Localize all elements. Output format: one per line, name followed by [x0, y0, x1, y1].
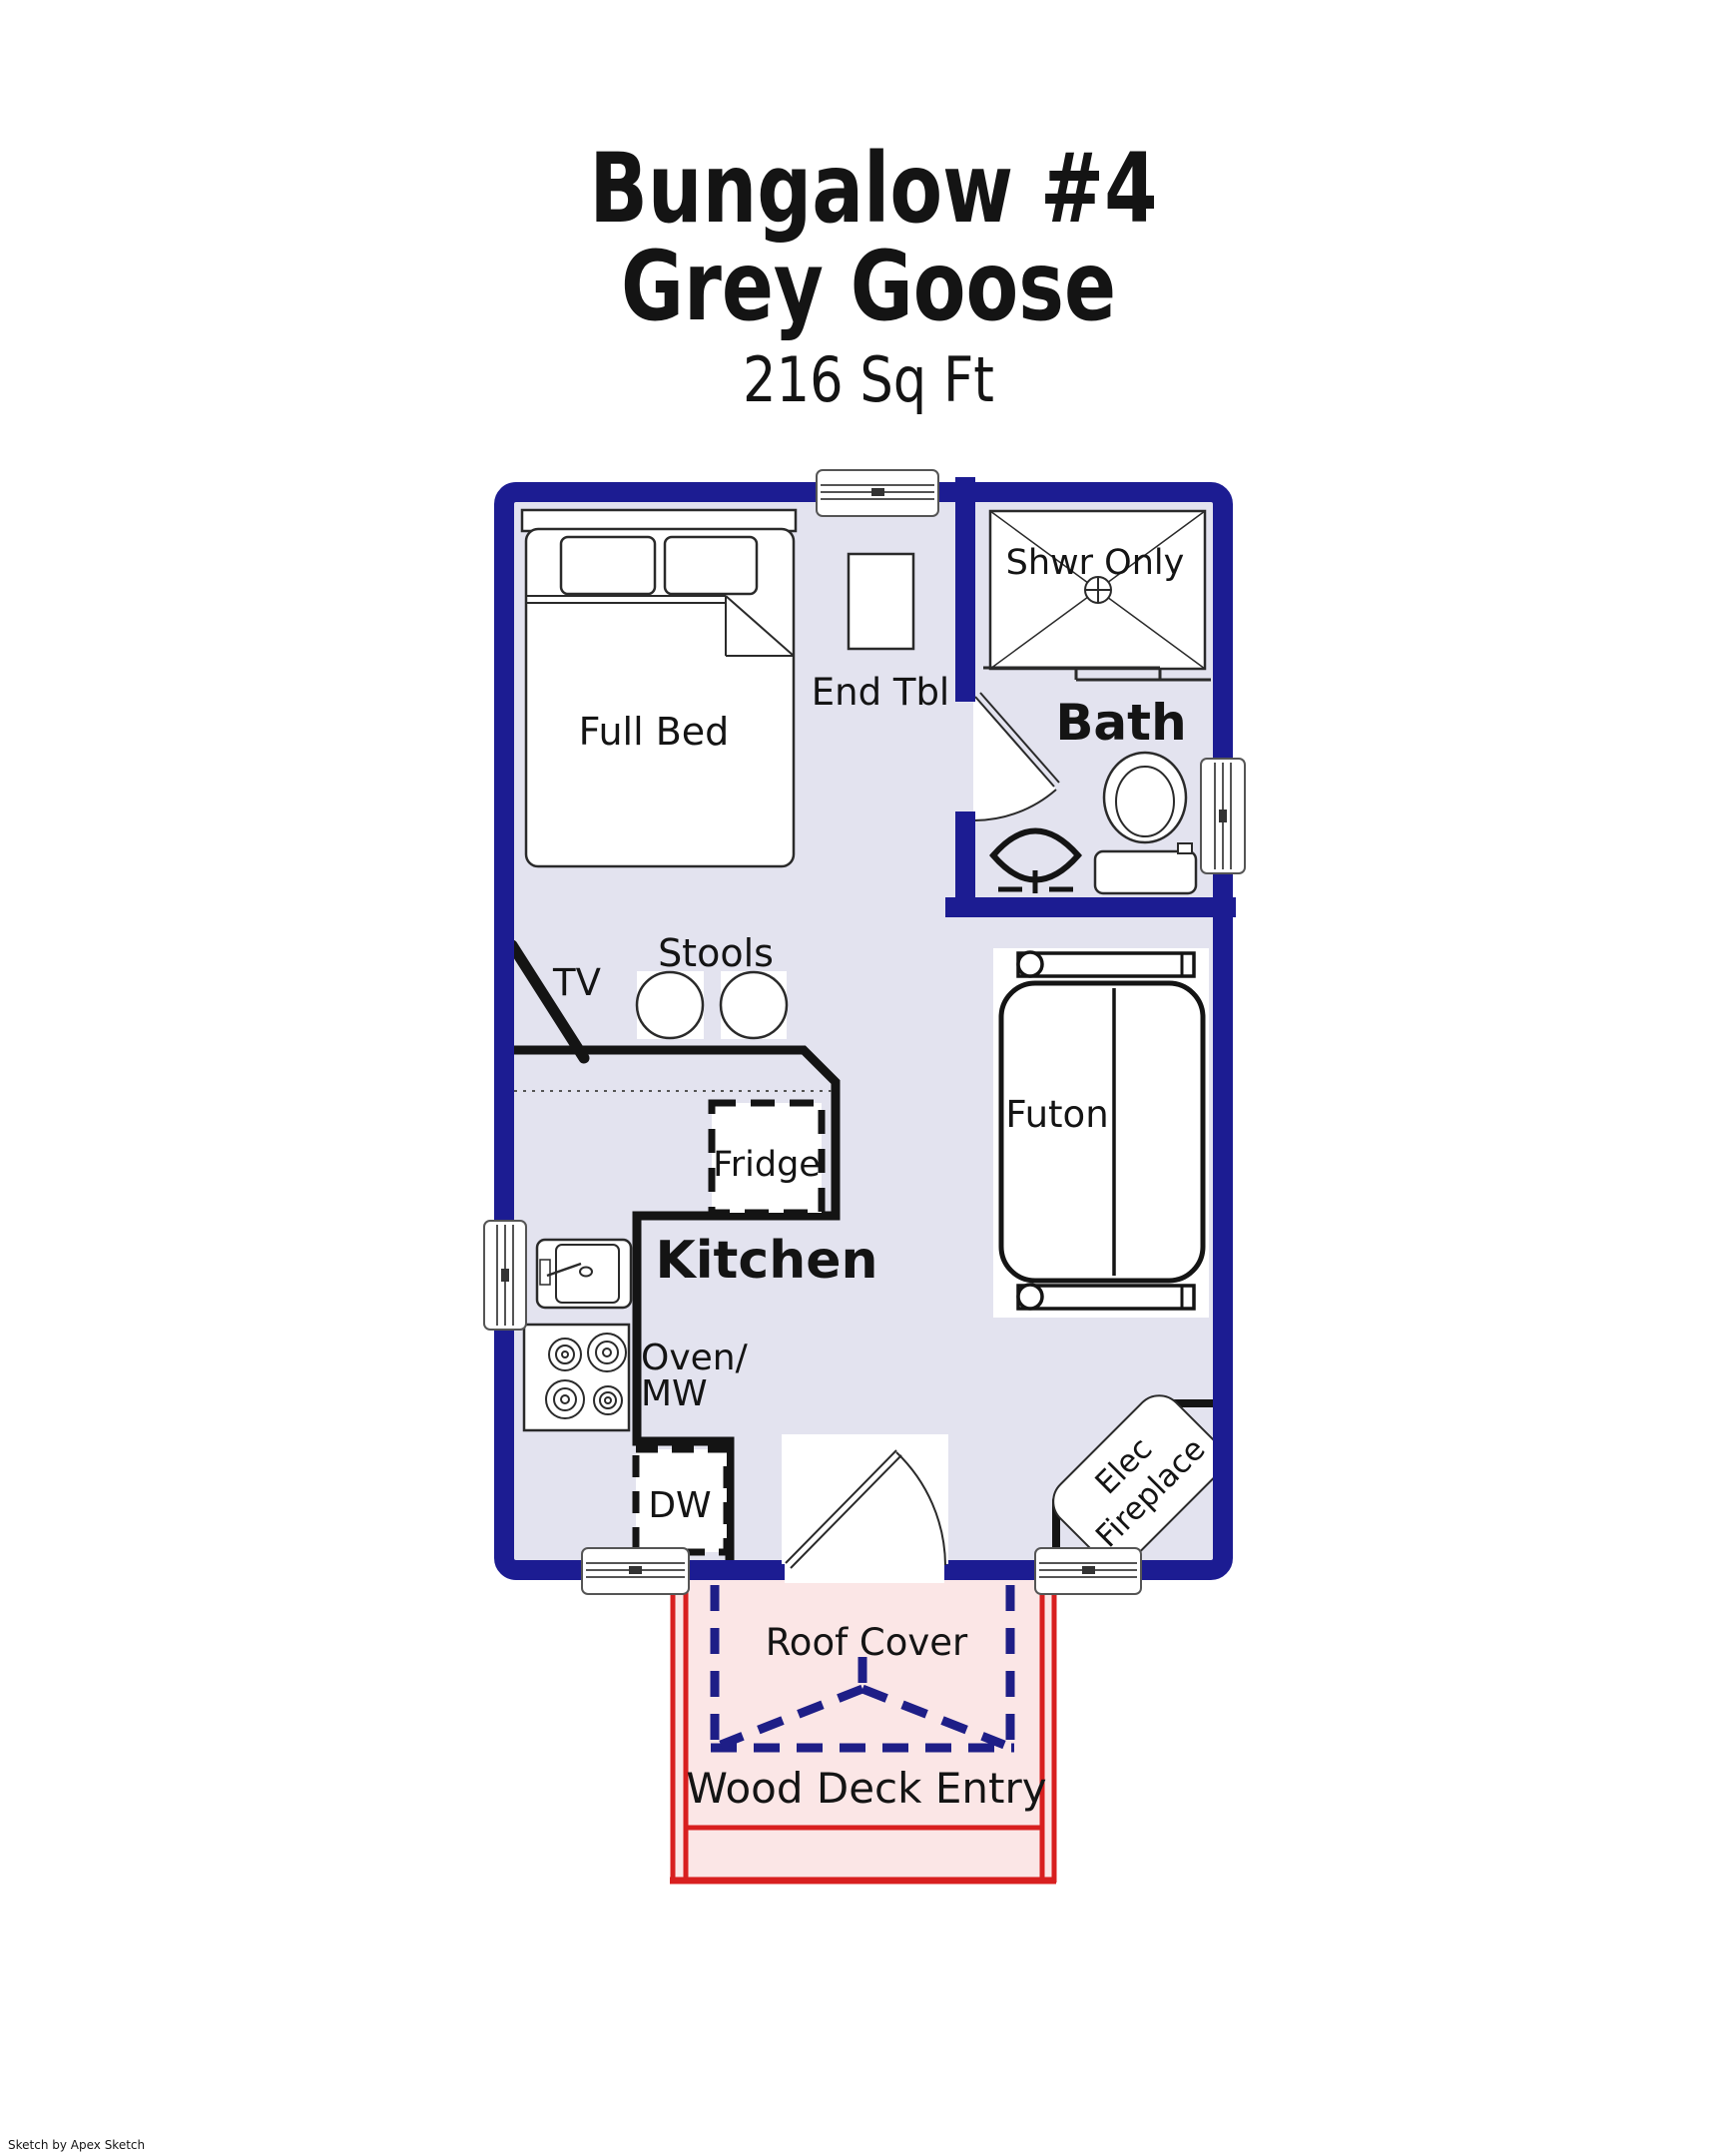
entry-door — [782, 1434, 948, 1583]
roof-cover-label: Roof Cover — [766, 1621, 968, 1664]
dishwasher-label: DW — [648, 1485, 711, 1526]
floor-plan-svg: Bungalow #4 Grey Goose 216 Sq Ft Roof Co… — [0, 0, 1713, 2156]
window-right-bath — [1201, 759, 1245, 873]
burner — [588, 1334, 626, 1371]
futon-armrest-knob — [1018, 1285, 1042, 1309]
wood-deck-label: Wood Deck Entry — [686, 1764, 1046, 1813]
fridge-label: Fridge — [713, 1145, 821, 1185]
full-bed-label: Full Bed — [579, 710, 730, 754]
end-table — [849, 554, 913, 649]
toilet-tank — [1095, 851, 1196, 893]
page-title: Bungalow #4 — [589, 133, 1157, 246]
kitchen-label: Kitchen — [655, 1231, 877, 1291]
window-bottom-right — [1035, 1548, 1141, 1594]
oven-label-2: MW — [641, 1373, 708, 1414]
faucet — [540, 1260, 550, 1285]
oven-label-1: Oven/ — [641, 1338, 749, 1378]
window-left-kitchen — [484, 1221, 526, 1330]
toilet-button — [1178, 843, 1192, 853]
drain — [580, 1268, 592, 1277]
shower-label: Shwr Only — [1006, 543, 1185, 583]
wood-deck: Roof Cover Wood Deck Entry — [670, 1580, 1056, 1883]
end-table-label: End Tbl — [812, 671, 949, 714]
page-subtitle: Grey Goose — [621, 231, 1116, 343]
futon-armrest-bottom — [1018, 1286, 1194, 1309]
stove — [524, 1325, 629, 1430]
burner — [546, 1380, 584, 1418]
bath-label: Bath — [1055, 694, 1186, 752]
window-top — [817, 470, 938, 516]
stools-label: Stools — [658, 931, 774, 975]
burner — [594, 1386, 622, 1414]
pillow — [665, 537, 757, 594]
stool — [721, 972, 787, 1038]
area-label: 216 Sq Ft — [743, 344, 994, 416]
pillow — [561, 537, 655, 594]
credit-text: Sketch by Apex Sketch — [8, 2138, 145, 2152]
stool — [637, 972, 703, 1038]
burner — [549, 1339, 581, 1370]
window-bottom-left — [582, 1548, 689, 1594]
tv-label: TV — [552, 961, 601, 1004]
kitchen-sink — [537, 1240, 631, 1308]
futon-armrest-top — [1018, 953, 1194, 976]
futon-label: Futon — [1005, 1093, 1108, 1136]
futon-armrest-knob — [1018, 952, 1042, 976]
floor-plan-page: Bungalow #4 Grey Goose 216 Sq Ft Roof Co… — [0, 0, 1713, 2156]
